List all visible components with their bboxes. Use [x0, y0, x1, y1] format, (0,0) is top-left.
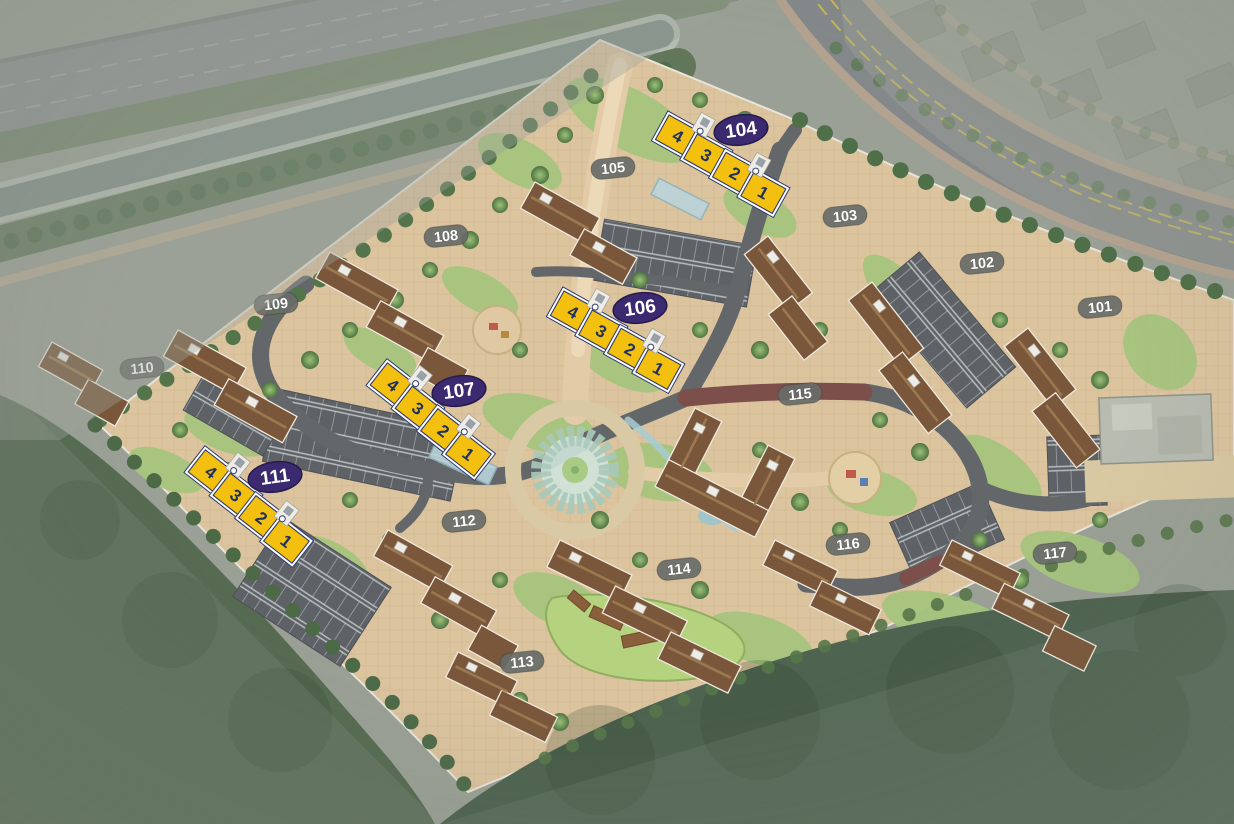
site-plan-map: 4 3 2 1 4 3 2 1 4 3 [0, 0, 1234, 824]
site-plan-screenshot: 4 3 2 1 4 3 2 1 4 3 [0, 0, 1234, 824]
haze-overlays [0, 0, 1234, 824]
